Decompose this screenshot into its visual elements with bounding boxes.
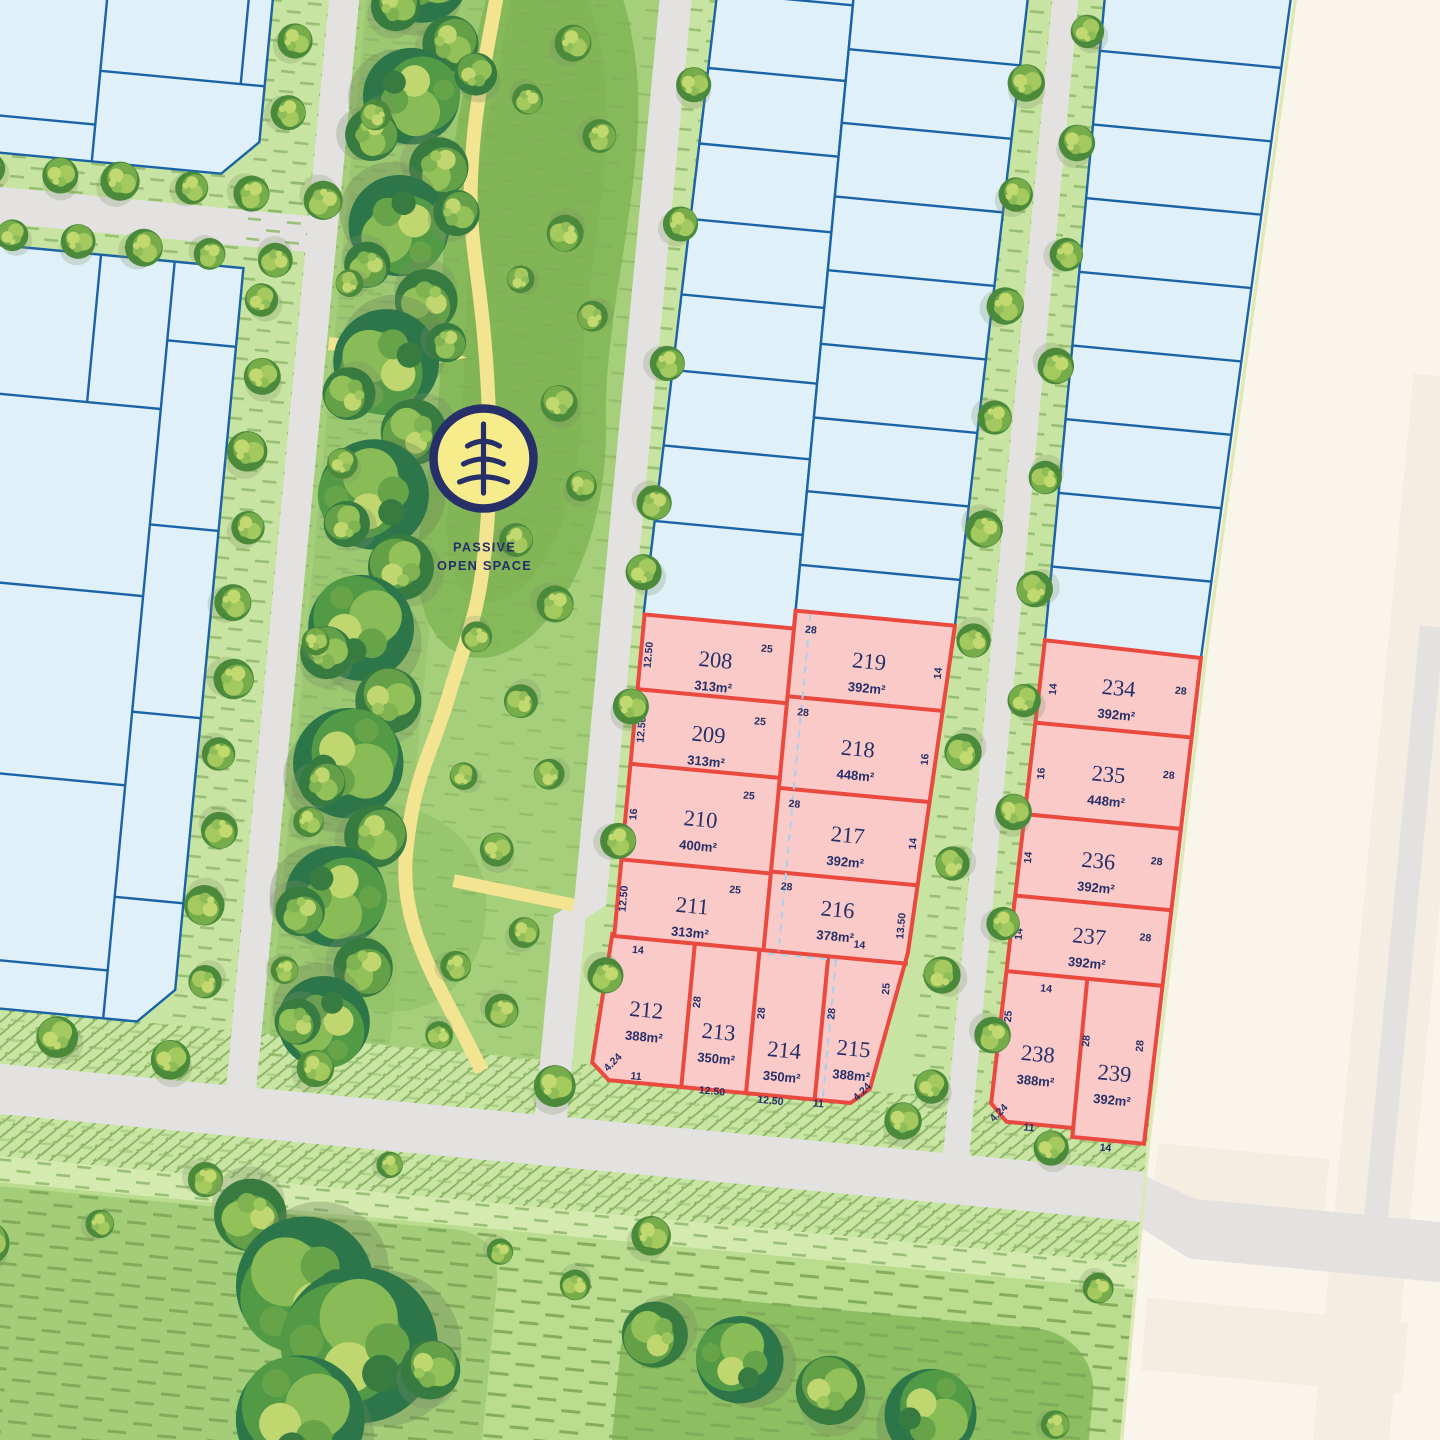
svg-text:239: 239 <box>1097 1059 1133 1087</box>
svg-text:28: 28 <box>788 798 801 811</box>
svg-text:25: 25 <box>743 790 756 803</box>
svg-text:14: 14 <box>1022 851 1035 864</box>
svg-text:12.50: 12.50 <box>757 1094 784 1108</box>
svg-text:215: 215 <box>836 1035 872 1063</box>
svg-text:16: 16 <box>1035 767 1048 780</box>
svg-text:14: 14 <box>1099 1142 1112 1155</box>
svg-text:211: 211 <box>675 892 710 920</box>
svg-text:12.50: 12.50 <box>698 1084 725 1098</box>
svg-text:216: 216 <box>820 895 856 923</box>
svg-text:PASSIVE: PASSIVE <box>453 540 516 555</box>
svg-text:11: 11 <box>1023 1121 1035 1134</box>
svg-text:217: 217 <box>830 821 866 849</box>
svg-text:14: 14 <box>1040 982 1053 995</box>
svg-text:12.50: 12.50 <box>617 885 631 912</box>
svg-text:28: 28 <box>825 1007 838 1020</box>
svg-text:OPEN SPACE: OPEN SPACE <box>437 558 532 573</box>
svg-text:234: 234 <box>1101 674 1137 702</box>
svg-text:14: 14 <box>932 667 945 680</box>
svg-text:25: 25 <box>754 715 767 728</box>
svg-text:25: 25 <box>760 643 773 656</box>
svg-text:28: 28 <box>780 880 793 893</box>
svg-text:214: 214 <box>766 1036 802 1064</box>
svg-text:28: 28 <box>691 996 704 1009</box>
svg-text:208: 208 <box>698 646 734 674</box>
svg-text:12.50: 12.50 <box>642 641 656 668</box>
svg-text:14: 14 <box>632 944 645 957</box>
svg-text:28: 28 <box>1134 1039 1147 1052</box>
svg-text:28: 28 <box>1080 1034 1093 1047</box>
svg-text:16: 16 <box>627 808 640 821</box>
svg-text:14: 14 <box>853 939 866 952</box>
svg-text:212: 212 <box>628 996 664 1024</box>
svg-text:218: 218 <box>840 735 876 763</box>
svg-text:13.50: 13.50 <box>894 912 908 939</box>
svg-text:25: 25 <box>880 982 893 995</box>
svg-text:235: 235 <box>1091 760 1127 788</box>
svg-text:28: 28 <box>1162 769 1175 782</box>
svg-text:16: 16 <box>919 753 932 766</box>
svg-text:210: 210 <box>683 805 719 833</box>
svg-text:14: 14 <box>907 837 920 850</box>
svg-text:236: 236 <box>1080 847 1116 875</box>
svg-text:238: 238 <box>1020 1040 1056 1068</box>
svg-text:28: 28 <box>1139 931 1152 944</box>
svg-text:219: 219 <box>851 647 887 675</box>
svg-text:28: 28 <box>804 624 817 637</box>
svg-text:28: 28 <box>755 1007 768 1020</box>
svg-text:11: 11 <box>630 1070 642 1083</box>
svg-text:25: 25 <box>729 884 742 897</box>
svg-text:28: 28 <box>1150 855 1163 868</box>
svg-text:11: 11 <box>812 1097 824 1110</box>
svg-text:28: 28 <box>797 706 810 719</box>
svg-text:28: 28 <box>1174 685 1187 698</box>
svg-text:209: 209 <box>691 720 727 748</box>
svg-text:213: 213 <box>701 1018 737 1046</box>
svg-text:237: 237 <box>1071 922 1107 950</box>
svg-text:14: 14 <box>1047 683 1060 696</box>
